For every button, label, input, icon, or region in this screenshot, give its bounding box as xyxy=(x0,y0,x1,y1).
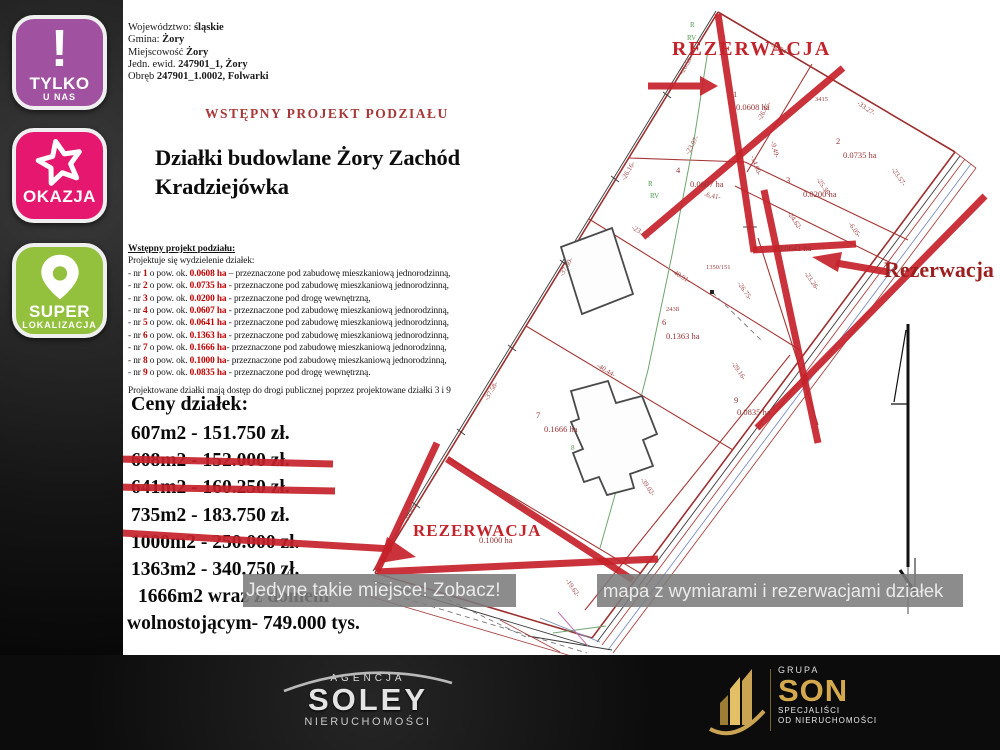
son-text: GRUPA SON SPECJALIŚCI OD NIERUCHOMOŚCI xyxy=(778,665,877,726)
price-row: 735m2 - 183.750 zł. xyxy=(131,502,360,529)
subdivision-intro: Projektuje się wydzielenie działek: xyxy=(128,255,451,267)
cadastral-header-line: Obręb 247901_1.0002, Folwarki xyxy=(128,71,269,83)
banner-right: mapa z wymiarami i rezerwacjami działek xyxy=(597,574,963,607)
son-name: SON xyxy=(778,675,877,706)
soley-subtitle: NIERUCHOMOŚCI xyxy=(278,716,458,728)
subdivision-block: Wstępny projekt podziału: Projektuje się… xyxy=(128,243,451,398)
price-row: 1000m2 - 250.000 zł. xyxy=(131,529,360,556)
son-logo-divider xyxy=(770,669,771,731)
price-row: 608m2 - 152.000 zł. xyxy=(131,447,360,474)
cadastral-header-line: Województwo: śląskie xyxy=(128,22,269,34)
subdivision-plot-row: - nr 1 o pow. ok. 0.0608 ha – przeznaczo… xyxy=(128,268,451,280)
son-subtitle-1: SPECJALIŚCI xyxy=(778,706,877,716)
page-title-line2: Kradziejówka xyxy=(155,172,460,201)
subdivision-plot-row: - nr 8 o pow. ok. 0.1000 ha- przeznaczon… xyxy=(128,355,451,367)
star-icon xyxy=(30,132,89,191)
badge-sidebar: !TYLKOU NASOKAZJASUPERLOKALIZACJA xyxy=(0,0,123,750)
price-row: wolnostojącym- 749.000 tys. xyxy=(127,610,360,637)
subdivision-heading: Wstępny projekt podziału: xyxy=(128,243,451,255)
page-title: Działki budowlane Żory Zachód Kradziejów… xyxy=(155,143,460,201)
badge-super-lokalizacja: SUPERLOKALIZACJA xyxy=(12,243,107,338)
cadastral-header-line: Miejscowość Żory xyxy=(128,47,269,59)
plot-list: - nr 1 o pow. ok. 0.0608 ha – przeznaczo… xyxy=(128,268,451,380)
cadastral-header-line: Jedn. ewid. 247901_1, Żory xyxy=(128,59,269,71)
subdivision-plot-row: - nr 7 o pow. ok. 0.1666 ha- przeznaczon… xyxy=(128,342,451,354)
cadastral-header: Województwo: śląskieGmina: ŻoryMiejscowo… xyxy=(128,22,269,83)
soley-logo: AGENCJA SOLEY NIERUCHOMOŚCI xyxy=(278,665,458,728)
badge-okazja: OKAZJA xyxy=(12,128,107,223)
badge-tylko-u-nas: !TYLKOU NAS xyxy=(12,15,107,110)
location-pin-icon xyxy=(37,251,83,303)
page-title-line1: Działki budowlane Żory Zachód xyxy=(155,143,460,172)
price-row: 607m2 - 151.750 zł. xyxy=(131,420,360,447)
soley-swoosh-icon xyxy=(280,667,456,693)
content-area: Województwo: śląskieGmina: ŻoryMiejscowo… xyxy=(0,0,1000,660)
badge-label: SUPER xyxy=(16,303,103,320)
project-title: WSTĘPNY PROJEKT PODZIAŁU xyxy=(205,106,449,122)
subdivision-plot-row: - nr 6 o pow. ok. 0.1363 ha - przeznaczo… xyxy=(128,330,451,342)
subdivision-plot-row: - nr 2 o pow. ok. 0.0735 ha - przeznaczo… xyxy=(128,280,451,292)
exclamation-icon: ! xyxy=(51,25,68,73)
banner-left: Jedyne takie miejsce! Zobacz! xyxy=(243,574,516,607)
cadastral-header-line: Gmina: Żory xyxy=(128,34,269,46)
price-row: 641m2 - 160.250 zł. xyxy=(131,474,360,501)
subdivision-plot-row: - nr 5 o pow. ok. 0.0641 ha - przeznaczo… xyxy=(128,317,451,329)
footer-bar: AGENCJA SOLEY NIERUCHOMOŚCI GRUPA SON SP… xyxy=(0,655,1000,750)
badge-sublabel: LOKALIZACJA xyxy=(16,320,103,331)
son-buildings-icon xyxy=(708,667,768,741)
listing-flyer: Województwo: śląskieGmina: ŻoryMiejscowo… xyxy=(0,0,1000,750)
badge-label: TYLKO xyxy=(16,75,103,92)
badge-label: OKAZJA xyxy=(16,188,103,205)
son-subtitle-2: OD NIERUCHOMOŚCI xyxy=(778,716,877,726)
subdivision-plot-row: - nr 4 o pow. ok. 0.0607 ha - przeznaczo… xyxy=(128,305,451,317)
subdivision-plot-row: - nr 3 o pow. ok. 0.0200 ha - przeznaczo… xyxy=(128,293,451,305)
price-heading: Ceny działek: xyxy=(131,391,360,417)
subdivision-plot-row: - nr 9 o pow. ok. 0.0835 ha - przeznaczo… xyxy=(128,367,451,379)
badge-sublabel: U NAS xyxy=(16,92,103,103)
